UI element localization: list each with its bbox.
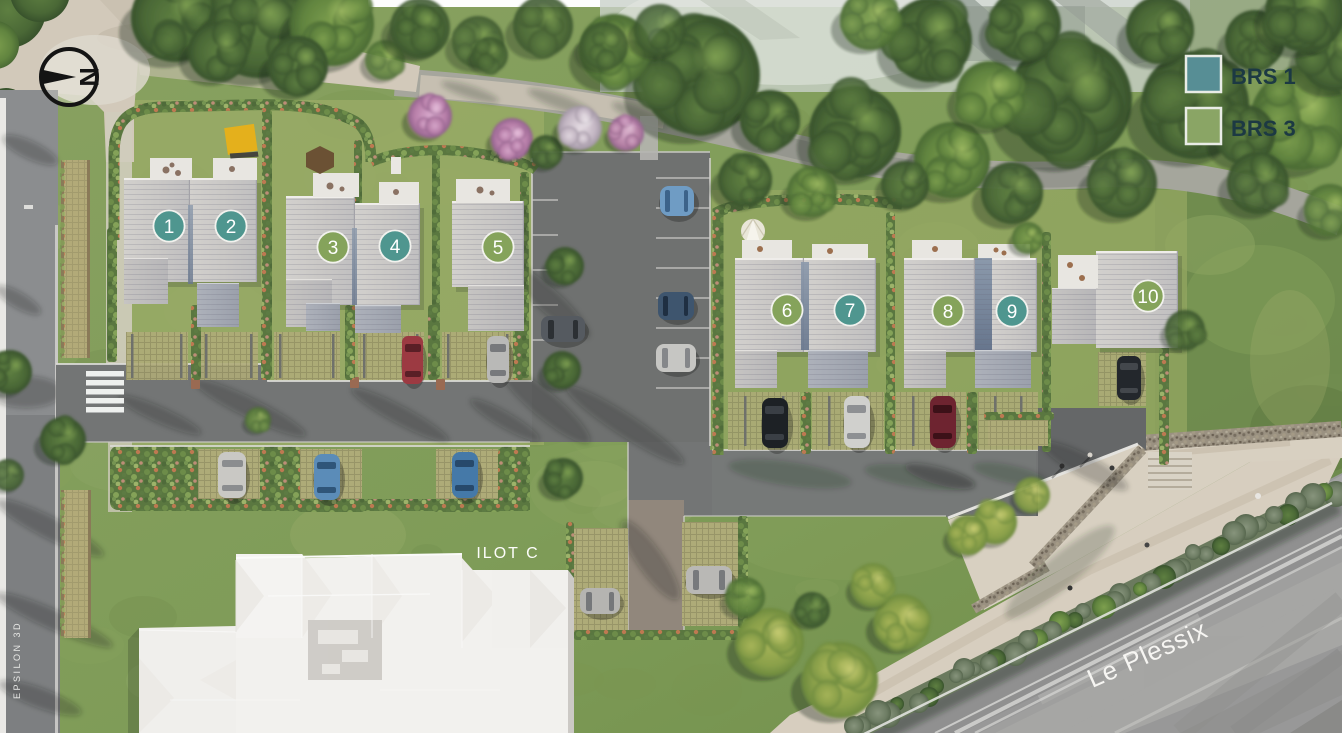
svg-text:2: 2 bbox=[226, 217, 237, 238]
svg-text:6: 6 bbox=[782, 301, 793, 322]
svg-text:9: 9 bbox=[1007, 302, 1018, 323]
svg-text:3: 3 bbox=[328, 238, 339, 259]
svg-text:ILOT C: ILOT C bbox=[476, 545, 539, 562]
svg-text:1: 1 bbox=[164, 217, 175, 238]
svg-text:EPSILON 3D: EPSILON 3D bbox=[12, 621, 22, 699]
svg-text:BRS 3: BRS 3 bbox=[1231, 116, 1296, 141]
svg-text:10: 10 bbox=[1137, 287, 1158, 308]
svg-text:7: 7 bbox=[845, 301, 856, 322]
svg-text:8: 8 bbox=[943, 302, 954, 323]
svg-text:5: 5 bbox=[493, 238, 504, 259]
svg-text:BRS 1: BRS 1 bbox=[1231, 64, 1296, 89]
svg-text:4: 4 bbox=[390, 237, 401, 258]
svg-text:N: N bbox=[74, 67, 104, 87]
